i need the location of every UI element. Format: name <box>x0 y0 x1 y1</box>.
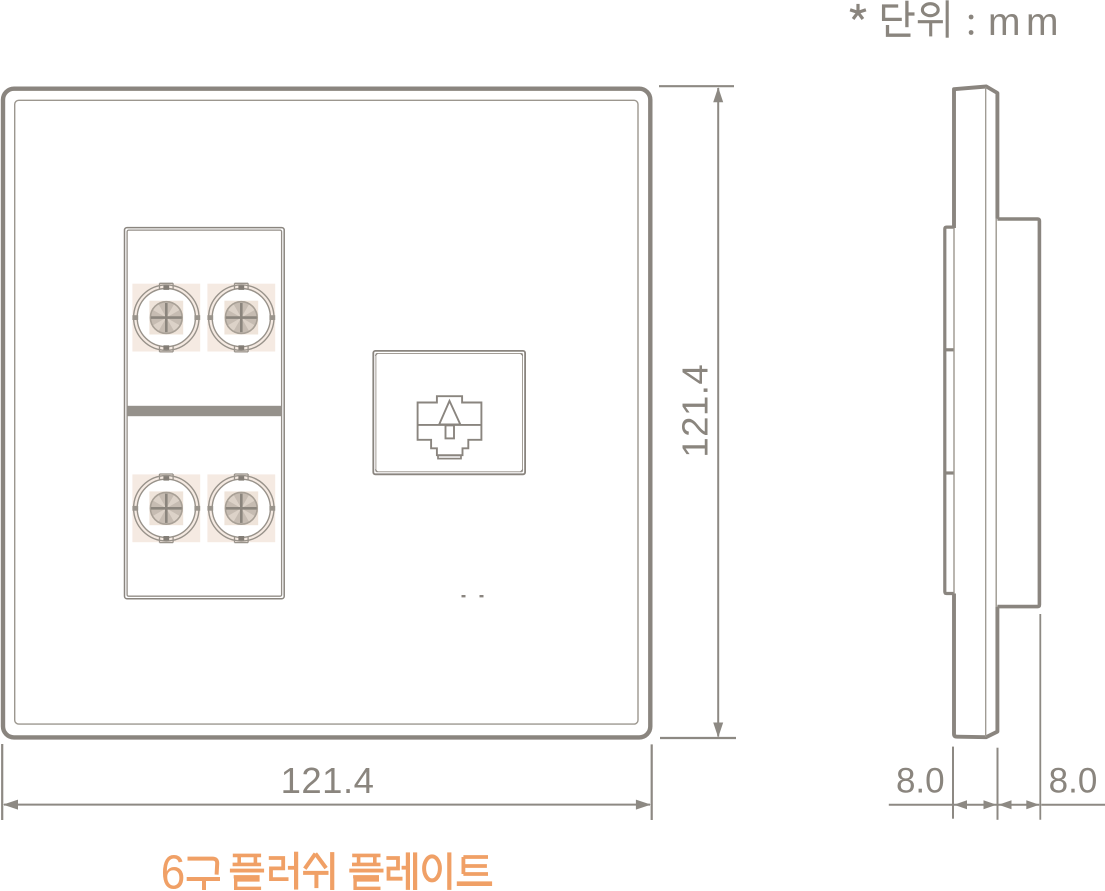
svg-text:mm: mm <box>988 1 1064 44</box>
svg-text:8.0: 8.0 <box>1049 762 1098 801</box>
svg-text:6: 6 <box>161 846 186 891</box>
svg-text:121.4: 121.4 <box>281 760 375 801</box>
svg-text:121.4: 121.4 <box>675 364 716 458</box>
svg-text:8.0: 8.0 <box>896 762 945 801</box>
